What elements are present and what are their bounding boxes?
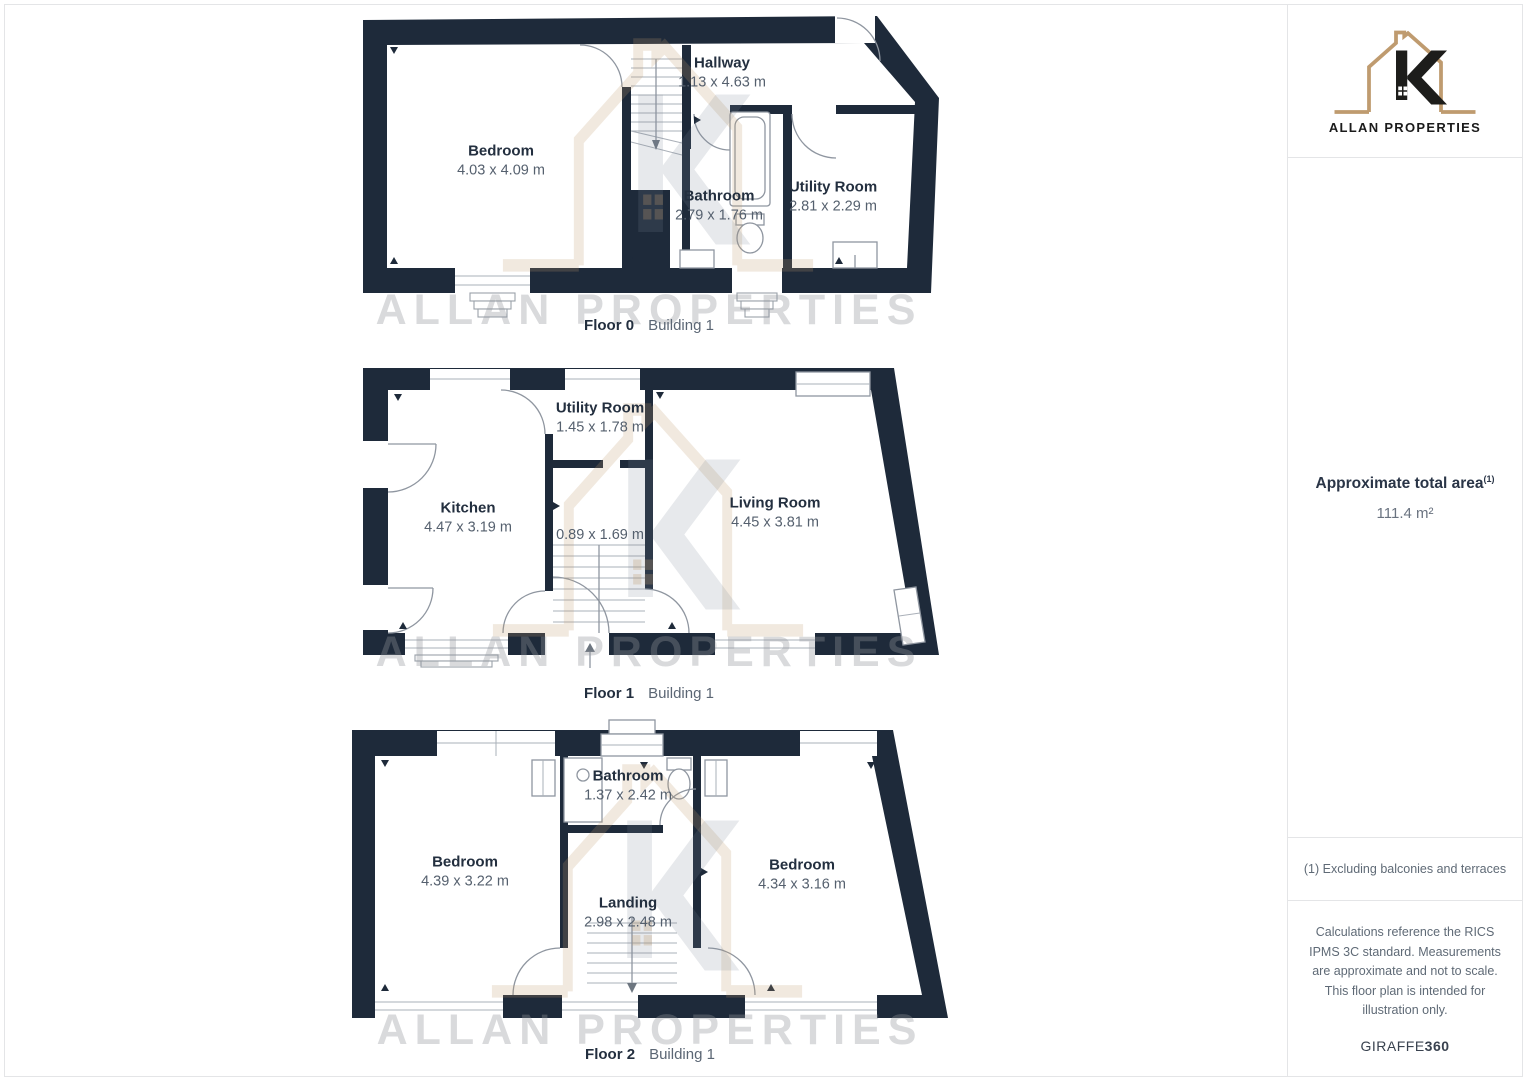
room-label-utility-room: Utility Room 2.81 x 2.29 m [789,179,877,216]
footnote: (1) Excluding balconies and terraces [1288,838,1522,901]
watermark-text: ALLAN PROPERTIES [376,628,923,677]
floor-0-plan [358,14,940,326]
room-label-living-room: Living Room 4.45 x 3.81 m [730,495,821,532]
room-label-utility-room: Utility Room 1.45 x 1.78 m [556,400,644,437]
total-area-box: Approximate total area(1) 111.4 m² [1288,158,1522,838]
room-label-kitchen: Kitchen 4.47 x 3.19 m [424,500,512,537]
floor-1-caption: Floor 1Building 1 [358,685,940,702]
footnote-ref: (1) [1483,474,1494,484]
building-label: Building 1 [648,685,714,702]
disclaimer-text: Calculations reference the RICS IPMS 3C … [1306,923,1504,1020]
room-label-hallway: Hallway 1.13 x 4.63 m [678,55,766,92]
room-label-bedroom-left: Bedroom 4.39 x 3.22 m [421,854,509,891]
building-label: Building 1 [649,1046,715,1063]
floor-1-section: ALLAN PROPERTIES Kitchen 4.47 x 3.19 m U… [358,352,940,708]
total-area-value: 111.4 m² [1377,505,1434,522]
floor-label: Floor 2 [585,1046,635,1063]
building-label: Building 1 [648,317,714,334]
provider-suffix: 360 [1425,1038,1450,1054]
room-label-stairs: 0.89 x 1.69 m [556,526,644,544]
floor-2-section: ALLAN PROPERTIES Bedroom 4.39 x 3.22 m B… [347,718,953,1070]
room-label-bathroom: Bathroom 2.79 x 1.76 m [675,188,763,225]
room-label-landing: Landing 2.98 x 2.48 m [584,895,672,932]
room-label-bedroom: Bedroom 4.03 x 4.09 m [457,143,545,180]
total-area-label: Approximate total area [1316,475,1484,492]
brand-logo-icon [1330,28,1480,118]
room-label-bathroom: Bathroom 1.37 x 2.42 m [584,768,672,805]
page: ALLAN PROPERTIES Bedroom 4.03 x 4.09 m H… [4,4,1523,1077]
total-area-title: Approximate total area(1) [1316,474,1495,493]
floor-0-caption: Floor 0Building 1 [358,317,940,334]
floor-label: Floor 0 [584,317,634,334]
floor-label: Floor 1 [584,685,634,702]
floor-2-caption: Floor 2Building 1 [347,1046,953,1063]
provider-name: GIRAFFE [1360,1038,1424,1054]
brand-logo-box: ALLAN PROPERTIES [1288,5,1522,158]
disclaimer-box: Calculations reference the RICS IPMS 3C … [1288,901,1522,1076]
room-label-bedroom-right: Bedroom 4.34 x 3.16 m [758,857,846,894]
info-sidebar: ALLAN PROPERTIES Approximate total area(… [1287,5,1522,1076]
floor-0-section: ALLAN PROPERTIES Bedroom 4.03 x 4.09 m H… [358,14,940,350]
provider-brand: GIRAFFE360 [1306,1036,1504,1058]
brand-name: ALLAN PROPERTIES [1329,120,1481,135]
